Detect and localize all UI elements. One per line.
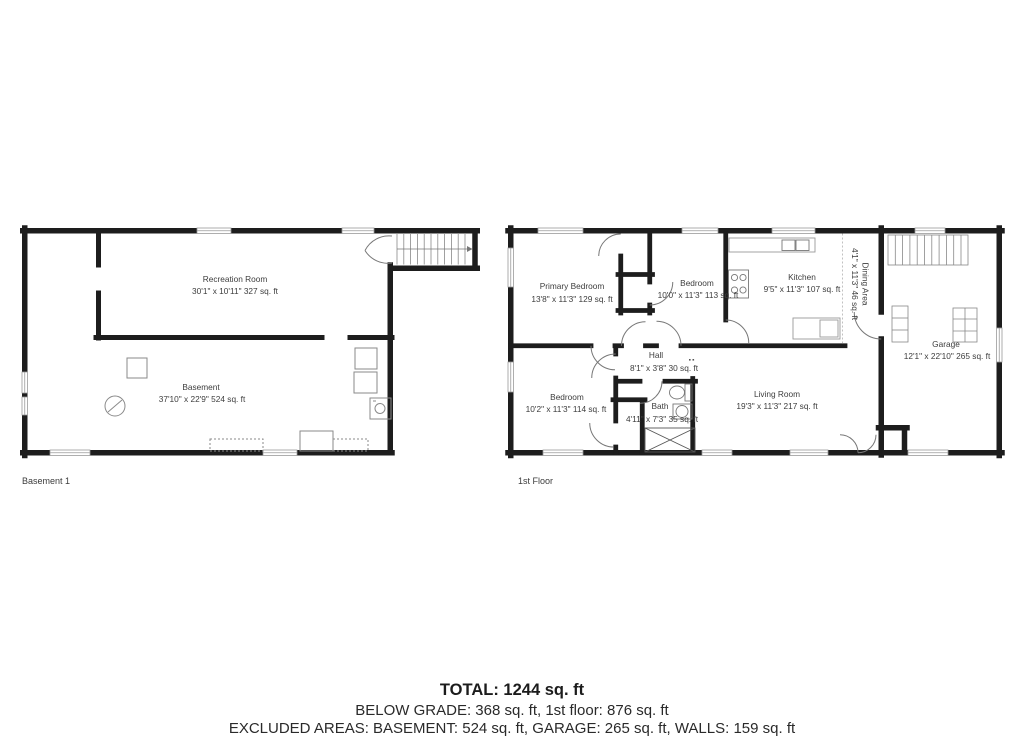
room-name: Recreation Room <box>203 274 268 284</box>
door-arc-icon <box>365 236 392 263</box>
excluded-areas-text: EXCLUDED AREAS: BASEMENT: 524 sq. ft, GA… <box>0 720 1024 737</box>
room-dims: 8'1" x 3'8" 30 sq. ft <box>630 363 699 373</box>
window <box>543 450 583 456</box>
furniture-box <box>127 358 147 378</box>
first-floor-plan: Primary Bedroom 13'8" x 11'3" 129 sq. ft… <box>505 220 1005 467</box>
toilet-icon <box>670 384 693 401</box>
storage-dashed-box <box>210 439 263 451</box>
basement-floor-label: Basement 1 <box>22 476 70 486</box>
floorplan-page: Recreation Room 30'1" x 10'11" 327 sq. f… <box>0 0 1024 738</box>
room-name: Primary Bedroom <box>540 281 605 291</box>
electrical-symbol-icon <box>105 396 125 416</box>
room-dims: 10'0" x 11'3" 113 sq. ft <box>658 290 739 300</box>
window <box>997 328 1003 362</box>
window <box>908 450 948 456</box>
room-dims: 4'11" x 7'3" 35 sq. ft <box>626 414 699 424</box>
window <box>22 397 28 415</box>
basement-plan: Recreation Room 30'1" x 10'11" 327 sq. f… <box>20 220 480 467</box>
bathtub-icon <box>645 428 695 452</box>
kitchen-island-counter <box>793 318 840 339</box>
stairs-icon <box>397 234 473 265</box>
room-name: Bedroom <box>550 392 584 402</box>
window <box>508 248 514 287</box>
basement-outer-walls <box>22 228 478 456</box>
window <box>508 362 514 392</box>
furniture-box <box>300 431 333 451</box>
garage-steps-icon <box>892 306 908 342</box>
basement-floorplan-drawing: Recreation Room 30'1" x 10'11" 327 sq. f… <box>20 220 480 462</box>
window <box>263 450 297 456</box>
first-floor-floorplan-drawing: Primary Bedroom 13'8" x 11'3" 129 sq. ft… <box>505 220 1005 462</box>
room-dims: 13'8" x 11'3" 129 sq. ft <box>531 294 613 304</box>
window <box>538 228 583 234</box>
room-dims: 4'1" x 11'3" 46 sq. ft <box>850 248 860 321</box>
room-name: Garage <box>932 339 960 349</box>
window <box>790 450 828 456</box>
window <box>22 372 28 393</box>
window <box>915 228 945 234</box>
window <box>197 228 231 234</box>
room-dims: 30'1" x 10'11" 327 sq. ft <box>192 286 279 296</box>
window <box>50 450 90 456</box>
window <box>342 228 374 234</box>
dining-area-label: Dining Area 4'1" x 11'3" 46 sq. ft <box>850 248 871 321</box>
below-grade-text: BELOW GRADE: 368 sq. ft, 1st floor: 876 … <box>0 702 1024 719</box>
window <box>682 228 718 234</box>
stairs-icon <box>888 235 968 265</box>
total-area-text: TOTAL: 1244 sq. ft <box>0 681 1024 700</box>
room-dims: 12'1" x 22'10" 265 sq. ft <box>904 351 991 361</box>
room-dims: 9'5" x 11'3" 107 sq. ft <box>764 284 841 294</box>
room-dims: 10'2" x 11'3" 114 sq. ft <box>526 404 607 414</box>
kitchen-sink-icon <box>782 240 809 251</box>
window <box>772 228 815 234</box>
room-name: Bedroom <box>680 278 714 288</box>
room-dims: 37'10" x 22'9" 524 sq. ft <box>159 394 246 404</box>
room-name: Hall <box>649 350 663 360</box>
dishwasher-icon <box>820 320 838 337</box>
basement-windows <box>22 228 374 456</box>
room-dims: 19'3" x 11'3" 217 sq. ft <box>736 401 818 411</box>
room-name: Basement <box>182 382 220 392</box>
first-floor-label: 1st Floor <box>518 476 553 486</box>
room-name: Dining Area <box>861 263 871 306</box>
room-name: Living Room <box>754 389 800 399</box>
furniture-box <box>354 372 377 393</box>
storage-dashed-box <box>333 439 368 451</box>
room-name: Bath <box>651 401 668 411</box>
garage-shelf-icon <box>953 308 977 342</box>
furniture-box <box>355 348 377 369</box>
area-summary: TOTAL: 1244 sq. ft BELOW GRADE: 368 sq. … <box>0 681 1024 738</box>
detector-marks <box>689 359 694 361</box>
basement-fixtures <box>105 348 391 451</box>
window <box>702 450 732 456</box>
room-name: Kitchen <box>788 272 816 282</box>
